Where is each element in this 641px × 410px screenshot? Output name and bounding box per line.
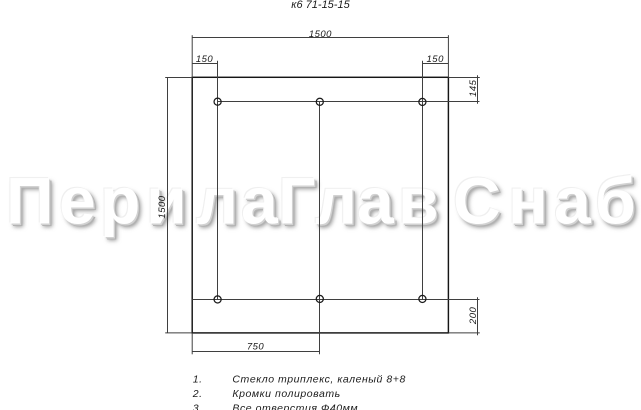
- svg-text:200: 200: [468, 307, 479, 326]
- svg-text:2.: 2.: [192, 388, 203, 400]
- svg-text:1.: 1.: [193, 374, 203, 386]
- svg-text:750: 750: [247, 342, 265, 353]
- svg-text:Все отверстия Ф40мм: Все отверстия Ф40мм: [232, 402, 358, 410]
- svg-text:Кромки полировать: Кромки полировать: [232, 388, 340, 400]
- svg-text:к6 71-15-15: к6 71-15-15: [291, 0, 350, 11]
- svg-text:150: 150: [196, 54, 214, 65]
- svg-text:1500: 1500: [157, 195, 168, 218]
- svg-text:3.: 3.: [193, 402, 203, 410]
- svg-text:Стекло триплекс, каленый 8+8: Стекло триплекс, каленый 8+8: [232, 374, 406, 386]
- svg-text:145: 145: [468, 79, 479, 97]
- svg-text:1500: 1500: [309, 29, 332, 40]
- svg-text:150: 150: [427, 54, 445, 65]
